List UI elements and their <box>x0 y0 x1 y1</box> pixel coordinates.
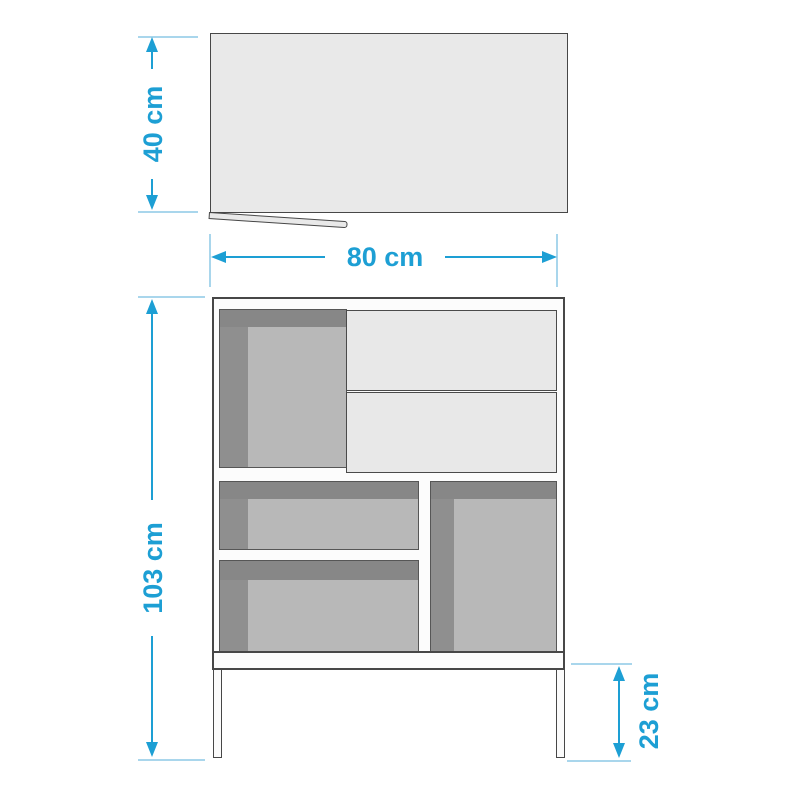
compartment-shadow-left <box>220 310 248 467</box>
top-view-flap <box>209 212 348 228</box>
leg-height-label: 23 cm <box>631 656 667 766</box>
leg-left <box>213 669 222 758</box>
leg-height-arrow-line <box>618 672 620 752</box>
compartment-upper-left <box>219 309 347 468</box>
leg-right <box>556 669 565 758</box>
compartment-bottom-left-upper <box>219 481 419 550</box>
arrowhead-up-icon <box>613 666 625 681</box>
height-label: 103 cm <box>135 500 171 636</box>
arrowhead-down-icon <box>146 195 158 210</box>
bottom-board-edge <box>213 651 564 653</box>
depth-label: 40 cm <box>135 69 171 179</box>
arrowhead-down-icon <box>613 743 625 758</box>
compartment-bottom-right <box>430 481 557 652</box>
top-view-panel <box>210 33 568 213</box>
leg-height-tick-bottom <box>567 760 631 762</box>
dimension-diagram: 40 cm 80 cm <box>0 0 800 800</box>
compartment-shadow-left <box>431 482 454 651</box>
compartment-shadow-top <box>431 482 556 499</box>
compartment-shadow-top <box>220 310 346 327</box>
compartment-shadow-top <box>220 561 418 580</box>
drawer-top <box>346 310 557 391</box>
drawer-bottom <box>346 392 557 473</box>
height-tick-top <box>138 296 205 298</box>
arrowhead-right-icon <box>542 251 557 263</box>
leg-height-tick-top <box>571 663 632 665</box>
compartment-shadow-top <box>220 482 418 499</box>
arrowhead-left-icon <box>211 251 226 263</box>
arrowhead-up-icon <box>146 299 158 314</box>
depth-tick-bottom <box>138 211 198 213</box>
arrowhead-up-icon <box>146 37 158 52</box>
compartment-bottom-left-lower <box>219 560 419 652</box>
arrowhead-down-icon <box>146 742 158 757</box>
width-label: 80 cm <box>325 239 445 275</box>
height-tick-bottom <box>138 759 205 761</box>
